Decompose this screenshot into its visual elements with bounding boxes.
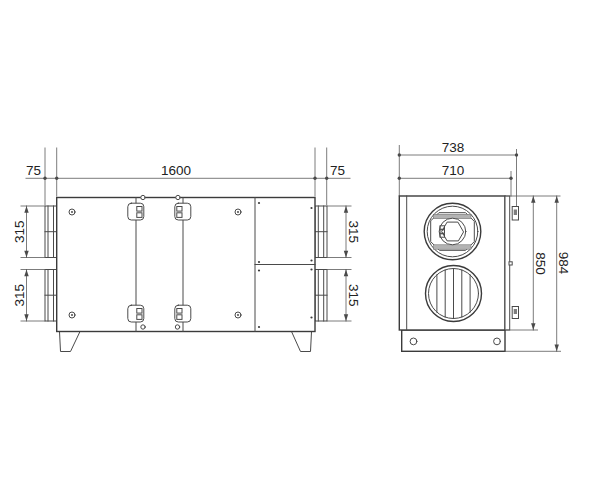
base-hole-right [494, 338, 501, 345]
door-latch-bottom-right [175, 305, 191, 322]
dim-label-overall-depth: 738 [442, 140, 465, 155]
door-lock [509, 262, 512, 265]
door-latch-top-right [175, 203, 191, 220]
base-hole-left [410, 338, 417, 345]
door-hinge-bottom [512, 307, 518, 319]
foot-left [60, 332, 80, 352]
dim-front-widths: 75 1600 75 [26, 148, 350, 205]
dim-spigots-right: 315 315 [327, 206, 361, 321]
base-plate [402, 330, 505, 351]
dim-label-right-overhang: 75 [330, 163, 345, 178]
front-view: 75 1600 75 [12, 148, 361, 352]
dim-label-spigot-left-bottom: 315 [12, 284, 27, 307]
side-view: 738 710 [398, 140, 571, 352]
dim-label-body-depth: 710 [442, 163, 465, 178]
duct-spigot-right-top [315, 206, 327, 258]
door-hinge-top [512, 207, 518, 221]
duct-spigot-left-bottom [45, 270, 57, 322]
dim-label-body-width: 1600 [161, 163, 191, 178]
dim-label-left-overhang: 75 [26, 163, 41, 178]
dim-label-spigot-right-top: 315 [346, 220, 361, 243]
duct-spigot-right-bottom [315, 270, 327, 322]
dim-label-body-height: 850 [533, 252, 548, 275]
foot-right [292, 332, 312, 352]
dim-label-spigot-left-top: 315 [12, 220, 27, 243]
door-latch-top-left [128, 203, 144, 220]
door-latch-bottom-left [128, 305, 144, 322]
dim-label-spigot-right-bottom: 315 [346, 284, 361, 307]
dim-label-overall-height: 984 [556, 252, 571, 275]
dimension-drawing: 75 1600 75 [0, 0, 600, 500]
duct-spigot-left-top [45, 206, 57, 258]
dim-spigots-left: 315 315 [12, 206, 45, 321]
